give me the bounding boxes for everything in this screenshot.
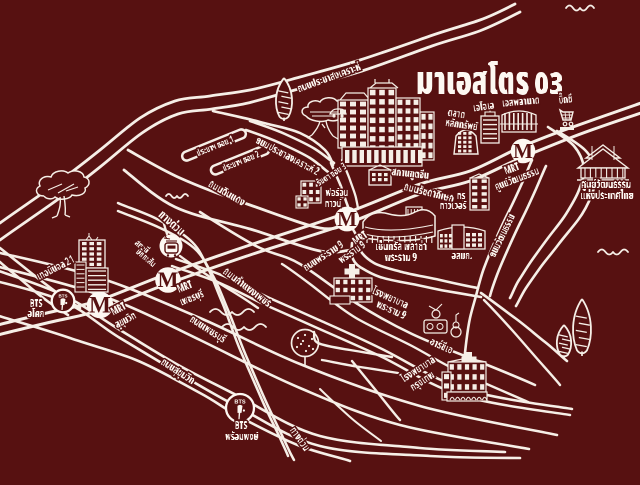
- svg-text:M: M: [158, 267, 179, 292]
- svg-text:BTS: BTS: [59, 293, 68, 298]
- svg-text:M: M: [89, 292, 111, 317]
- svg-text:M: M: [513, 139, 533, 163]
- svg-text:BTS: BTS: [234, 400, 245, 406]
- svg-text:M: M: [337, 207, 357, 231]
